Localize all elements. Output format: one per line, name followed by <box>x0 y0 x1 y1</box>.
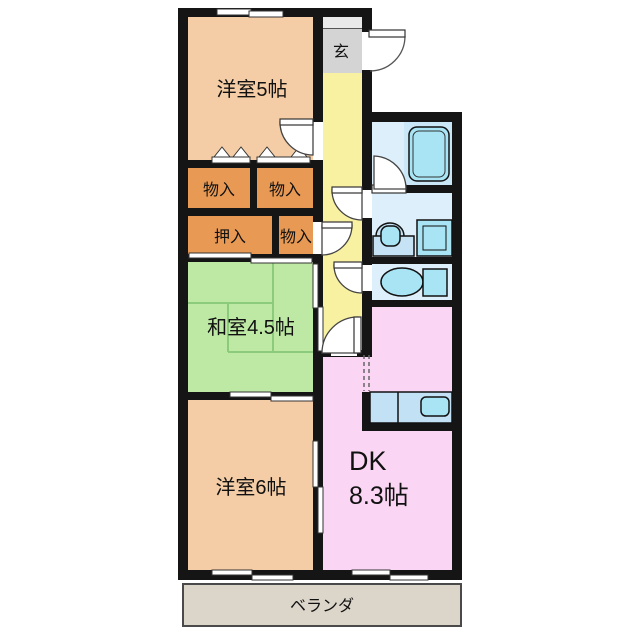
kitchen-sink-icon <box>421 397 449 416</box>
label-monoire-c: 物入 <box>280 228 312 246</box>
entrance-step <box>323 17 362 28</box>
label-dk: DK <box>349 446 387 476</box>
kitchen-counter <box>370 392 452 423</box>
label-monoire-b: 物入 <box>269 181 301 199</box>
floor-plan: 洋室5帖 玄 物入 物入 押入 物入 和室4.5帖 洋室6帖 DK 8.3帖 ベ… <box>0 0 640 640</box>
toilet-icon <box>381 268 447 296</box>
floor-plan-drawing: 洋室5帖 玄 物入 物入 押入 物入 和室4.5帖 洋室6帖 DK 8.3帖 ベ… <box>0 0 640 640</box>
label-washitsu: 和室4.5帖 <box>207 316 295 339</box>
washing-machine-pan-icon <box>417 220 452 256</box>
label-western5: 洋室5帖 <box>216 78 287 101</box>
label-genkan: 玄 <box>333 43 349 61</box>
label-dk-size: 8.3帖 <box>349 482 409 510</box>
door-swing-entrance <box>369 30 405 71</box>
label-monoire-a: 物入 <box>203 181 235 199</box>
label-oshiire: 押入 <box>214 228 246 246</box>
room-dk-upper <box>372 307 452 357</box>
label-veranda: ベランダ <box>290 597 354 615</box>
room-dk-main <box>323 357 452 570</box>
label-western6: 洋室6帖 <box>215 476 286 499</box>
bathtub-icon <box>409 127 449 181</box>
